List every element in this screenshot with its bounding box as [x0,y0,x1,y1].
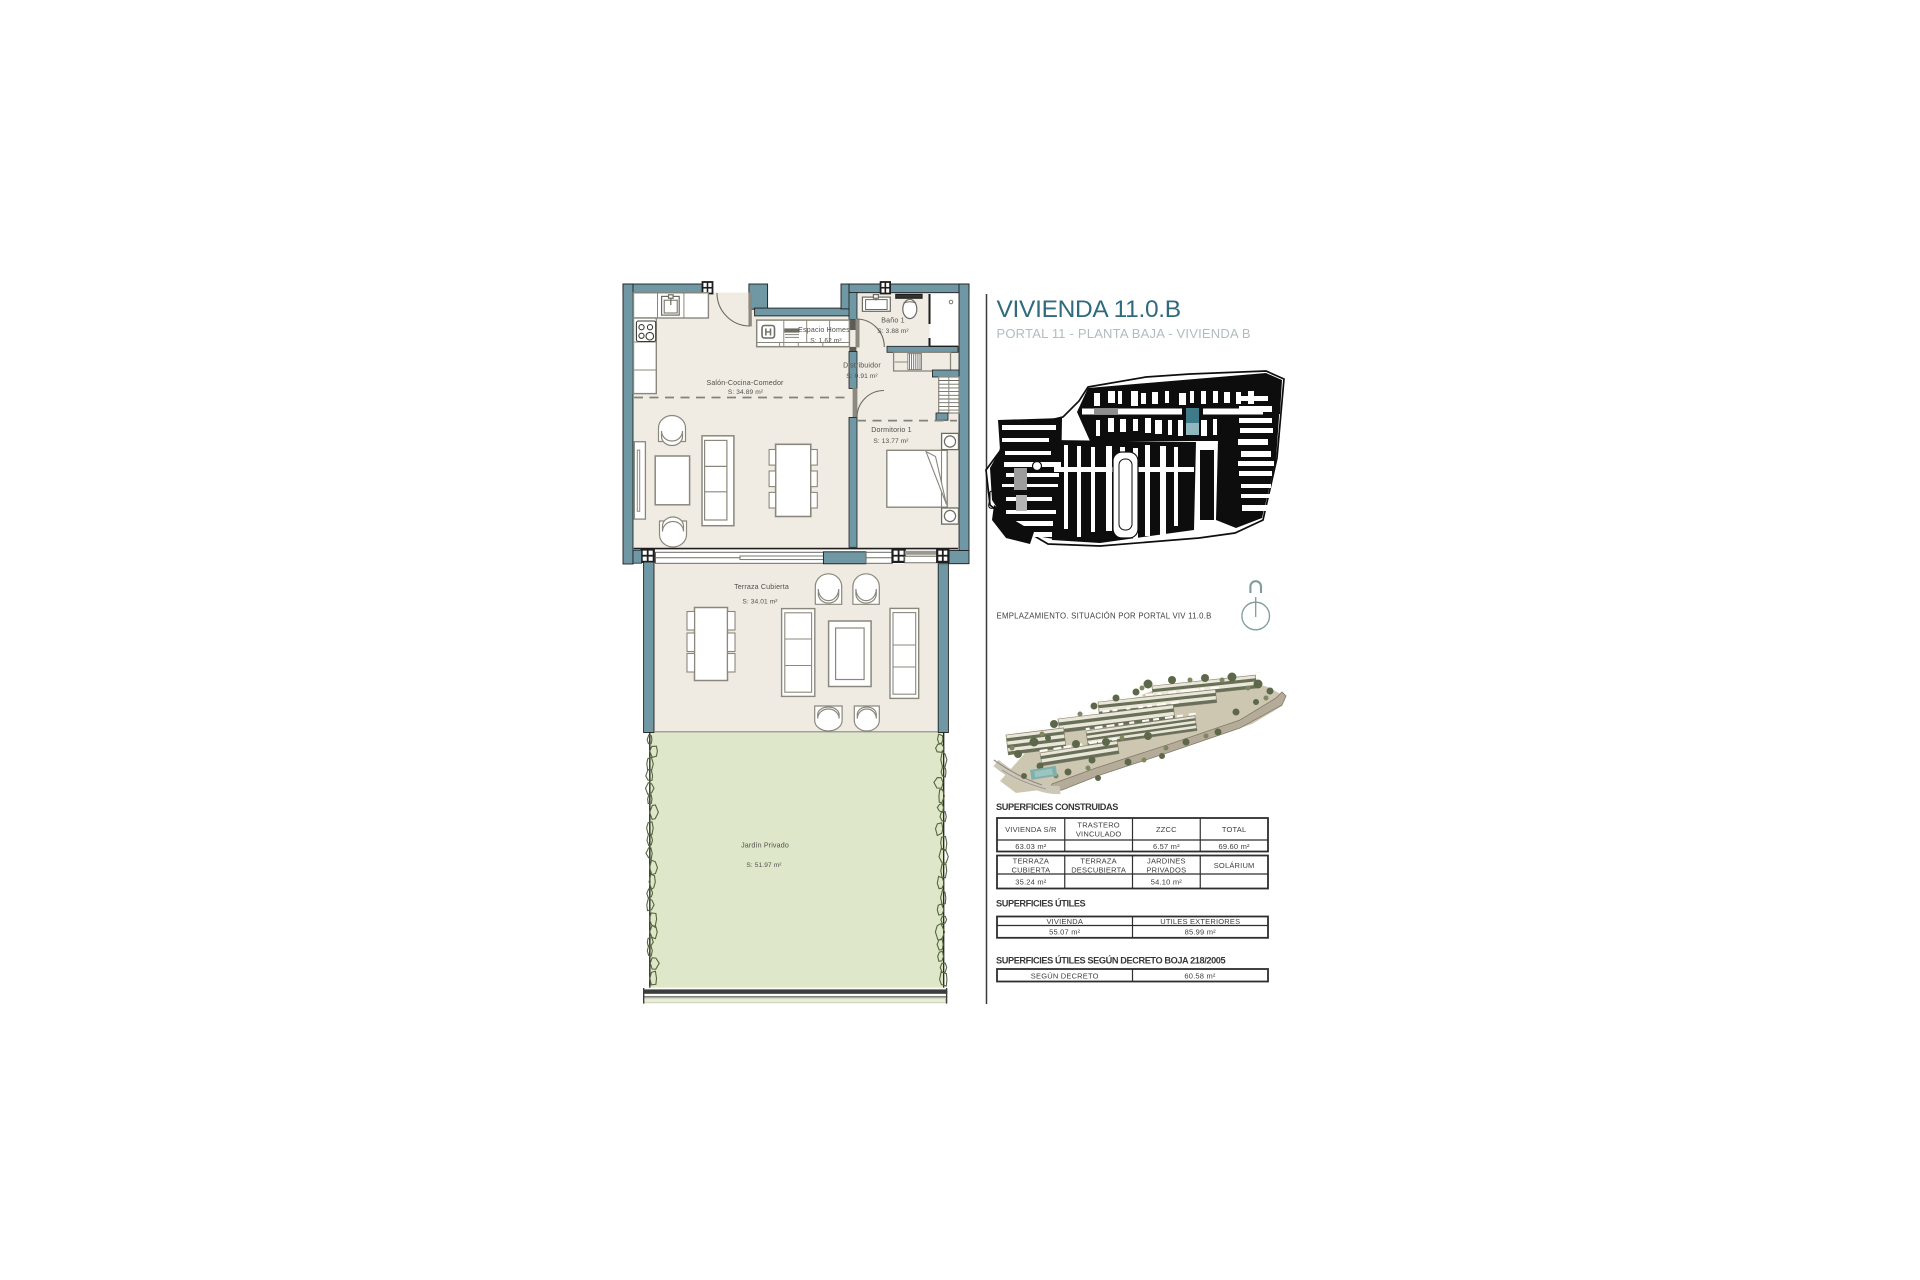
svg-text:Dormitorio 1: Dormitorio 1 [871,426,911,434]
svg-text:DESCUBIERTA: DESCUBIERTA [1071,865,1126,874]
svg-text:SUPERFICIES ÚTILES: SUPERFICIES ÚTILES [996,898,1086,909]
svg-text:SUPERFICIES ÚTILES SEGÚN DECRE: SUPERFICIES ÚTILES SEGÚN DECRETO BOJA 21… [996,955,1226,966]
svg-text:54.10 m²: 54.10 m² [1151,877,1182,886]
svg-text:PORTAL 11 - PLANTA BAJA - VIVI: PORTAL 11 - PLANTA BAJA - VIVIENDA B [997,326,1251,341]
svg-text:S: 3.88 m²: S: 3.88 m² [877,328,909,335]
svg-text:CUBIERTA: CUBIERTA [1011,865,1050,874]
svg-text:Salón-Cocina-Comedor: Salón-Cocina-Comedor [706,379,784,387]
svg-text:S: 0.91 m²: S: 0.91 m² [846,373,878,380]
svg-text:S: 13.77 m²: S: 13.77 m² [873,438,909,445]
svg-text:6.57 m²: 6.57 m² [1153,842,1180,851]
svg-text:UTILES EXTERIORES: UTILES EXTERIORES [1160,917,1240,926]
svg-text:VINCULADO: VINCULADO [1076,830,1122,839]
svg-text:Espacio Homes: Espacio Homes [798,326,850,334]
svg-text:VIVIENDA: VIVIENDA [1046,917,1083,926]
svg-text:Jardín Privado: Jardín Privado [741,842,789,850]
svg-text:SOLÁRIUM: SOLÁRIUM [1214,861,1255,870]
svg-text:S: 1.62 m²: S: 1.62 m² [810,338,842,345]
svg-text:TERRAZA: TERRAZA [1013,856,1049,865]
svg-text:ZZCC: ZZCC [1156,825,1177,834]
svg-text:55.07 m²: 55.07 m² [1049,928,1080,937]
svg-text:85.99 m²: 85.99 m² [1185,928,1216,937]
svg-text:VIVIENDA 11.0.B: VIVIENDA 11.0.B [997,296,1181,323]
svg-text:S: 34.01 m²: S: 34.01 m² [742,598,778,605]
svg-text:SUPERFICIES CONSTRUIDAS: SUPERFICIES CONSTRUIDAS [996,802,1118,812]
svg-text:69.60 m²: 69.60 m² [1219,842,1250,851]
svg-text:EMPLAZAMIENTO. SITUACIÓN POR P: EMPLAZAMIENTO. SITUACIÓN POR PORTAL VIV … [997,612,1212,621]
svg-text:PRIVADOS: PRIVADOS [1146,865,1186,874]
svg-text:Terraza Cubierta: Terraza Cubierta [734,583,789,591]
svg-text:VIVIENDA S/R: VIVIENDA S/R [1005,825,1057,834]
svg-text:35.24 m²: 35.24 m² [1015,877,1046,886]
svg-text:60.58 m²: 60.58 m² [1184,972,1215,981]
svg-text:Baño 1: Baño 1 [881,317,904,325]
svg-text:SEGÚN DECRETO: SEGÚN DECRETO [1031,972,1099,981]
svg-text:H: H [764,326,772,338]
svg-text:63.03 m²: 63.03 m² [1015,842,1046,851]
svg-text:S: 34.89 m²: S: 34.89 m² [728,389,764,396]
svg-text:TOTAL: TOTAL [1222,825,1246,834]
svg-text:JARDINES: JARDINES [1147,856,1186,865]
svg-text:TRASTERO: TRASTERO [1077,821,1119,830]
svg-text:S: 51.97 m²: S: 51.97 m² [746,862,782,869]
svg-text:TERRAZA: TERRAZA [1080,856,1116,865]
svg-text:Distribuidor: Distribuidor [843,362,881,370]
